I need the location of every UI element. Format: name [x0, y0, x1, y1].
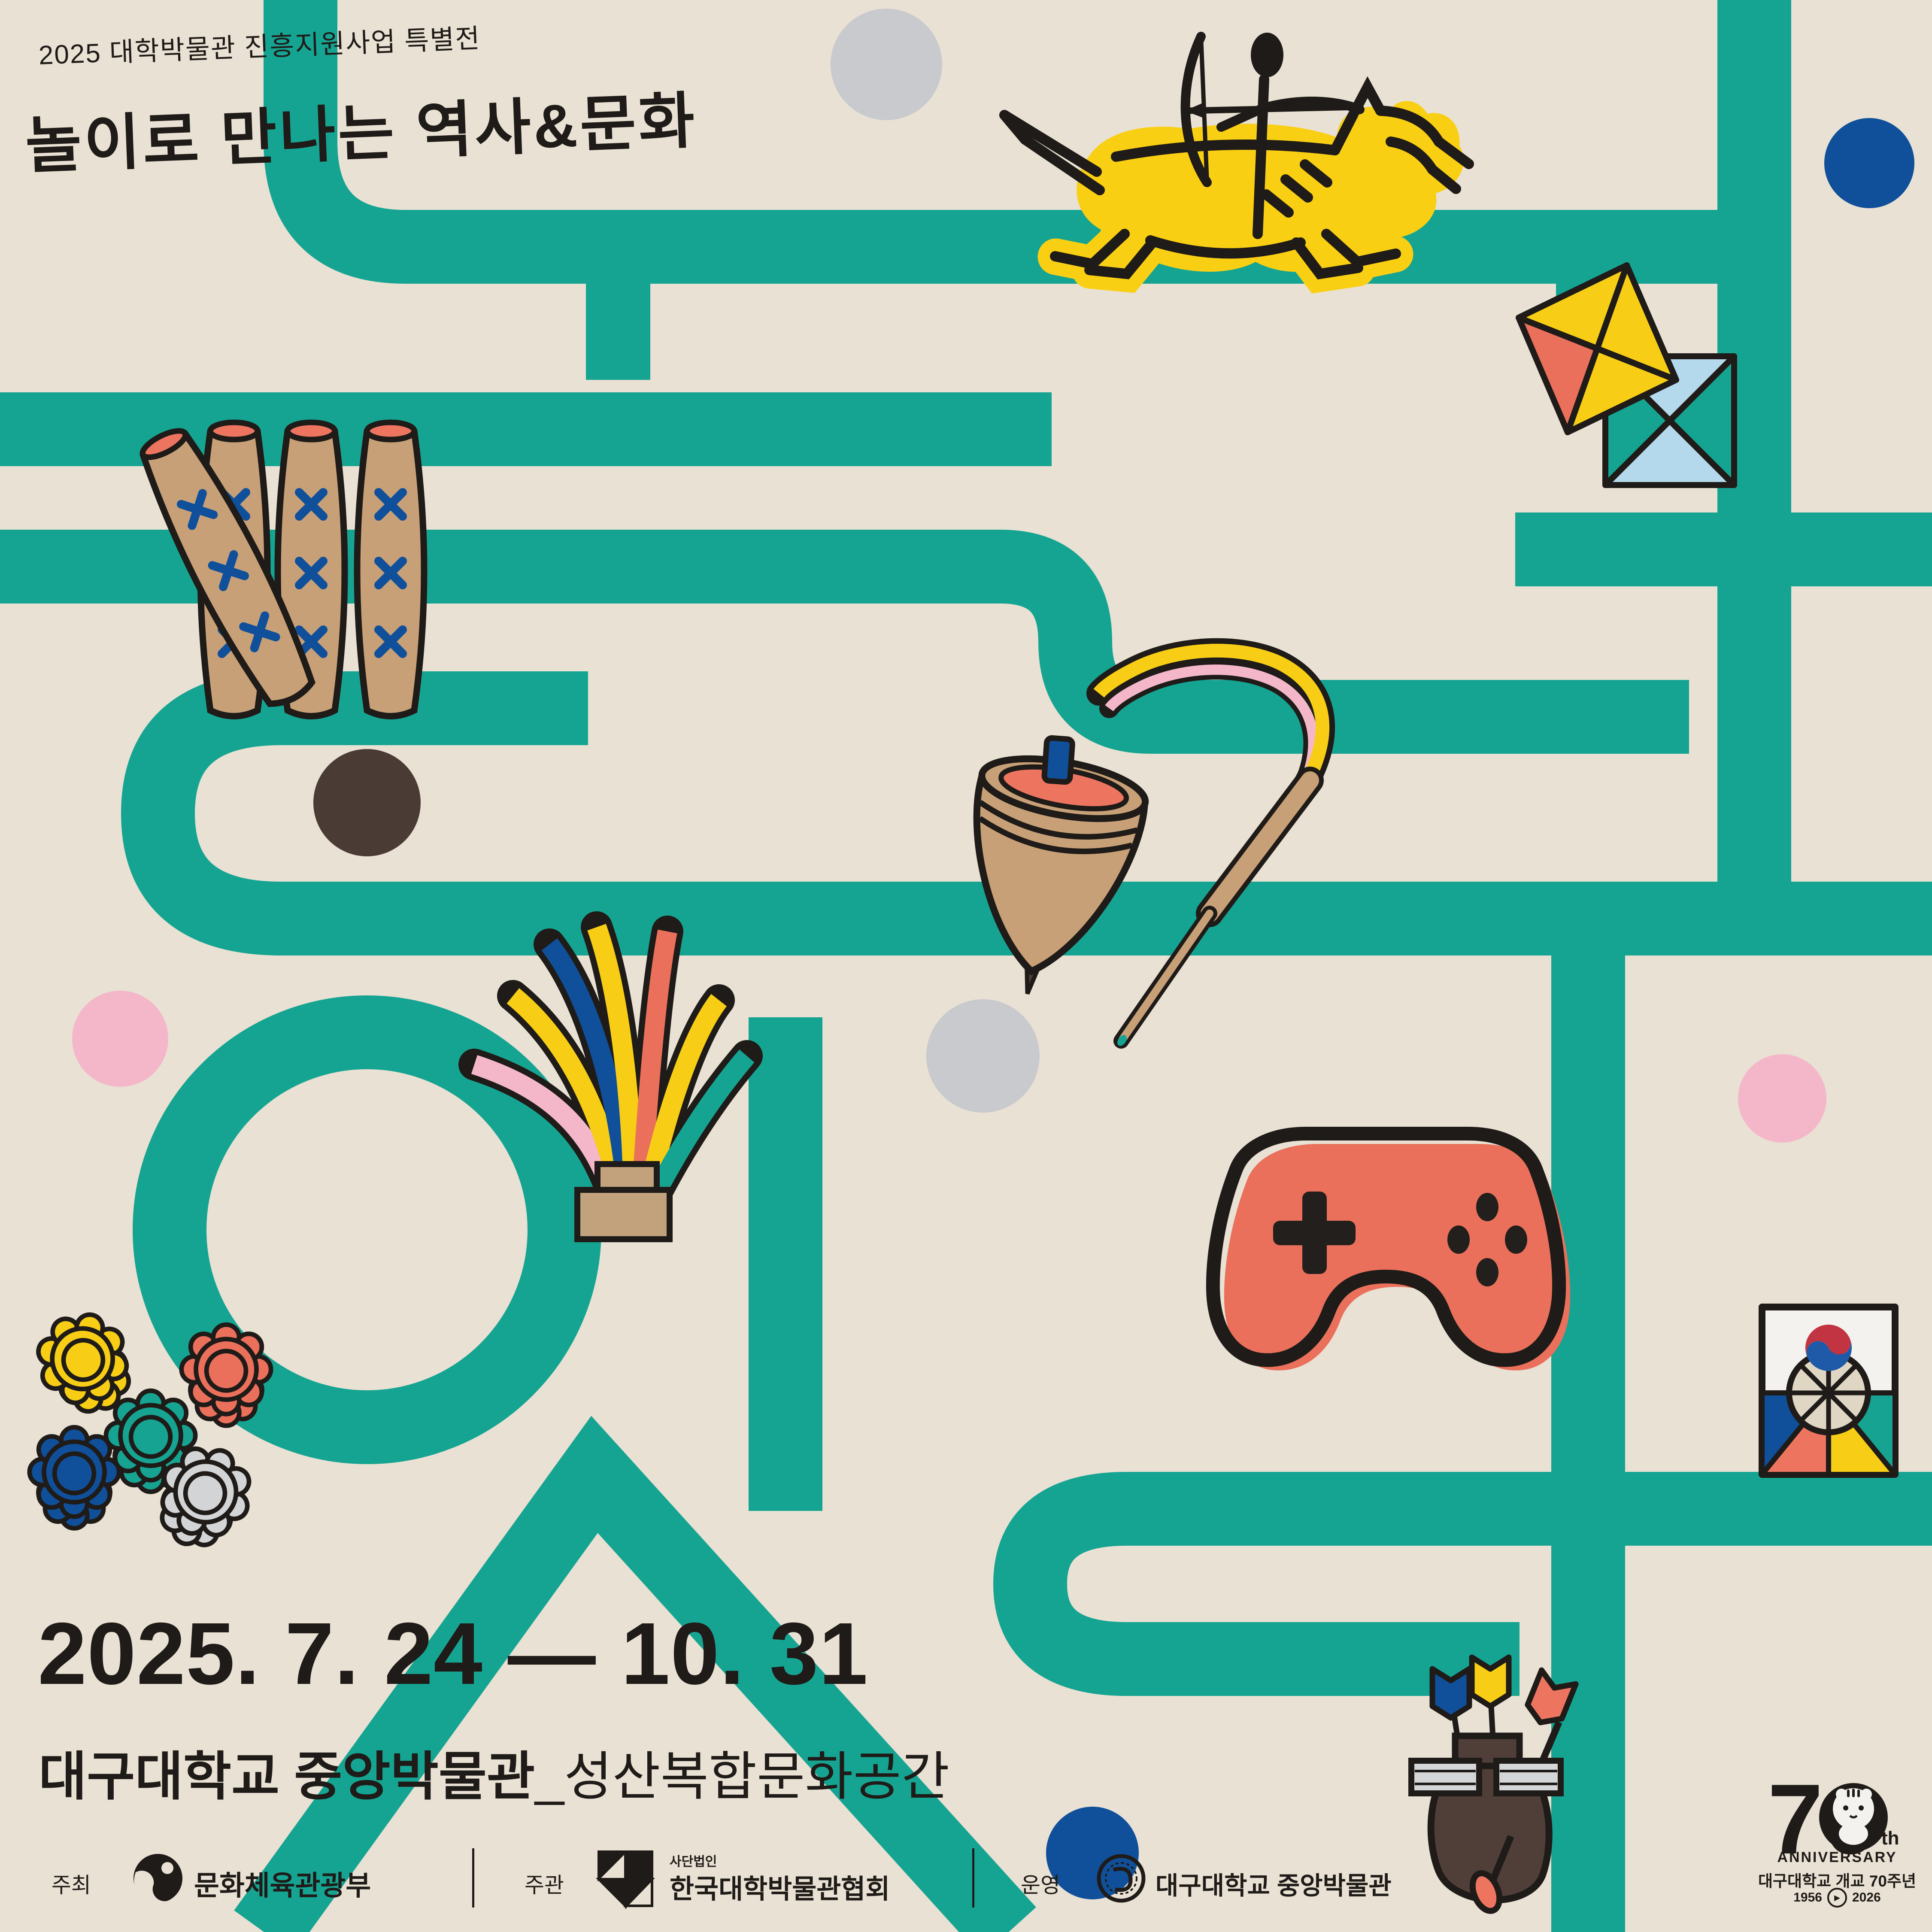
anniversary-suffix: th: [1881, 1828, 1899, 1849]
dot-gray-top: [831, 9, 942, 120]
dot-gray-center: [926, 999, 1040, 1113]
dot-blue-right: [1824, 118, 1914, 208]
association-logo: [599, 1852, 652, 1906]
arrow-icon: [1188, 107, 1356, 111]
host-name: 문화체육관광부: [194, 1864, 371, 1903]
play-icon: ▶: [1827, 1888, 1847, 1908]
ministry-logo: [133, 1854, 182, 1904]
venue-line: 대구대학교 중앙박물관_성산복합문화공간: [39, 1734, 949, 1810]
exhibition-poster: 70 2025 대학박물관 진흥지원사업 특별전 놀이로 만나는 역사&문화 2…: [0, 0, 1932, 1932]
operator-name: 대구대학교 중앙박물관: [1156, 1865, 1392, 1902]
game-controller-icon: [1213, 1134, 1570, 1371]
anniversary-years: 1956 ▶ 2026: [1758, 1888, 1917, 1908]
footer-divider-1: [472, 1848, 474, 1908]
dot-pink-right: [1738, 1054, 1826, 1143]
tuho-icon: [1411, 1657, 1576, 1915]
organizer-label: 주관: [525, 1868, 564, 1899]
jegi-icon: [474, 927, 747, 1239]
flower-tokens-icon: [21, 1297, 271, 1562]
anniversary-word: ANNIVERSARY: [1758, 1849, 1917, 1866]
operator-label: 운영: [1021, 1868, 1060, 1899]
shield-kite-icon: [1762, 1307, 1895, 1474]
exhibition-dates: 2025. 7. 24 — 10. 31: [38, 1603, 868, 1705]
kite-pair-icon: [1519, 265, 1734, 485]
host-label: 주최: [52, 1868, 91, 1899]
dot-pink-left: [72, 991, 168, 1087]
anniversary-year-from: 1956: [1793, 1890, 1822, 1905]
dot-brown-left: [313, 749, 421, 856]
anniversary-year-to: 2026: [1852, 1890, 1881, 1905]
organizer-name: 한국대학박물관협회: [670, 1867, 890, 1906]
footer-divider-2: [972, 1848, 974, 1908]
venue-sub: _성산복합문화공간: [535, 1747, 949, 1806]
venue-main: 대구대학교 중앙박물관: [39, 1747, 535, 1806]
